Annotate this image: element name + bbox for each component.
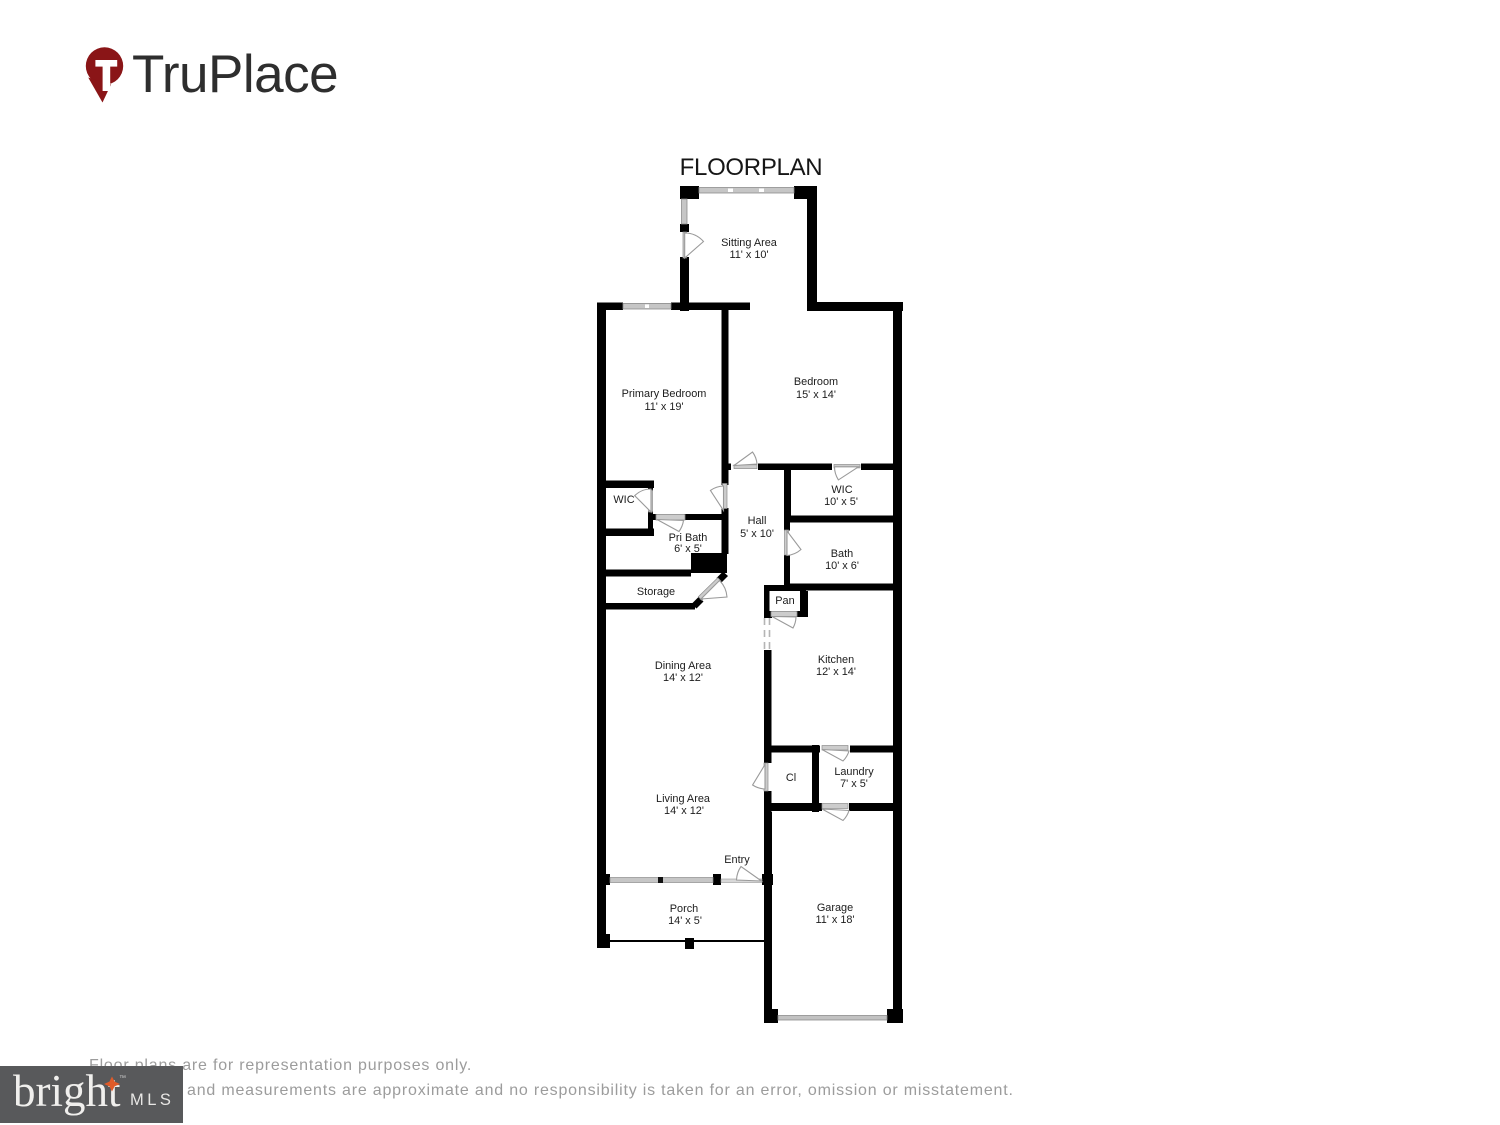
svg-text:11' x 19': 11' x 19' [644,401,683,413]
svg-text:10' x 5': 10' x 5' [824,496,858,508]
svg-text:7' x 5': 7' x 5' [840,778,868,790]
svg-text:bright: bright [13,1066,121,1116]
svg-text:WIC: WIC [613,494,634,506]
svg-text:15' x 14': 15' x 14' [796,389,836,401]
svg-text:™: ™ [119,1075,126,1082]
svg-text:MLS: MLS [130,1091,174,1109]
svg-text:14' x 12': 14' x 12' [664,805,704,817]
svg-text:Laundry: Laundry [834,766,874,778]
svg-text:Entry: Entry [724,854,750,866]
svg-text:Storage: Storage [637,586,675,598]
svg-text:Sitting Area: Sitting Area [721,237,778,249]
svg-text:Pan: Pan [775,595,794,607]
svg-text:Primary Bedroom: Primary Bedroom [622,388,707,400]
svg-text:11' x 18': 11' x 18' [815,914,854,926]
svg-text:Hall: Hall [748,515,767,527]
svg-text:5' x 10': 5' x 10' [740,528,774,540]
svg-text:Bedroom: Bedroom [794,376,838,388]
svg-text:14' x 12': 14' x 12' [663,672,703,684]
svg-text:12' x 14': 12' x 14' [816,666,856,678]
svg-text:Garage: Garage [817,902,853,914]
svg-text:FLOORPLAN: FLOORPLAN [680,154,823,181]
svg-text:WIC: WIC [831,484,852,496]
svg-text:Cl: Cl [786,772,796,784]
svg-text:11' x 10': 11' x 10' [729,249,768,261]
svg-text:Dining Area: Dining Area [655,660,712,672]
svg-text:Kitchen: Kitchen [818,654,854,666]
svg-text:and measurements are approxima: and measurements are approximate and no … [187,1082,1014,1099]
svg-text:Porch: Porch [670,903,698,915]
svg-text:Living Area: Living Area [656,793,711,805]
svg-text:TruPlace: TruPlace [132,45,338,104]
svg-text:10' x 6': 10' x 6' [825,560,859,572]
svg-text:6' x 5': 6' x 5' [674,543,702,555]
svg-text:Bath: Bath [831,548,853,560]
svg-text:14' x 5': 14' x 5' [668,915,702,927]
